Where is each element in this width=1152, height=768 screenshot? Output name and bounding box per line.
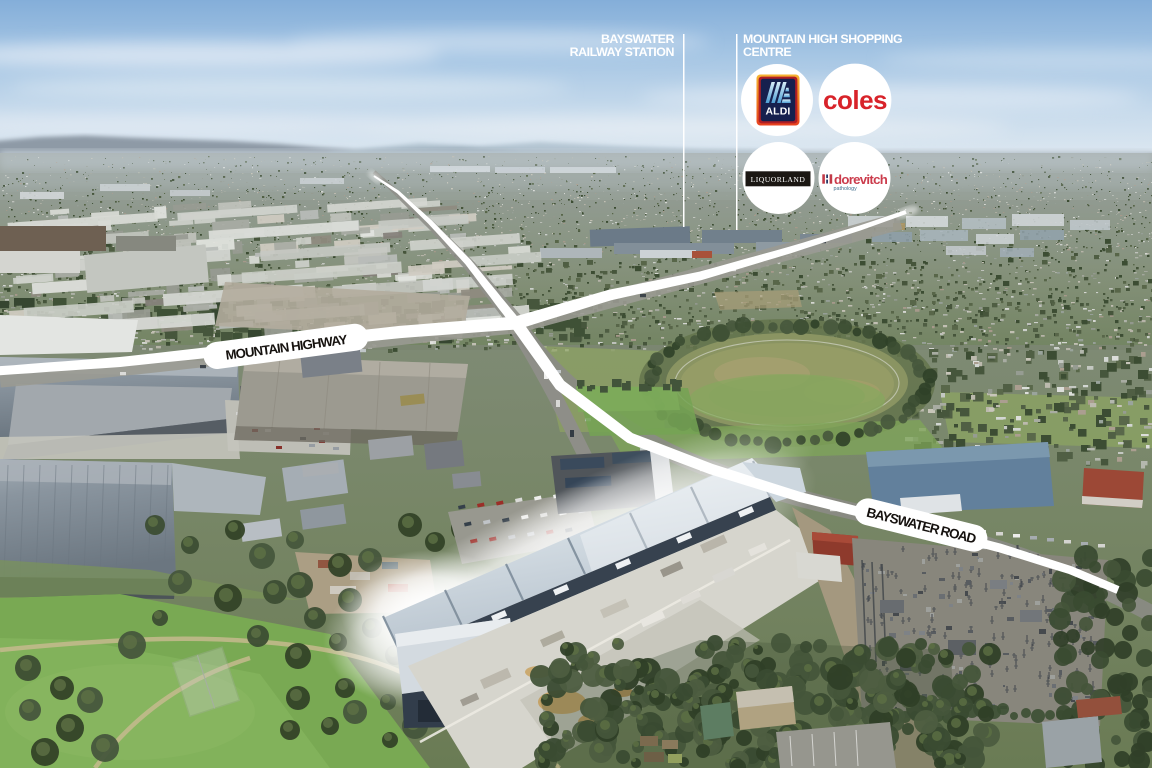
svg-text:RAILWAY STATION: RAILWAY STATION <box>570 45 675 59</box>
svg-text:BAYSWATER: BAYSWATER <box>601 32 675 46</box>
svg-text:coles: coles <box>823 85 887 115</box>
svg-text:CENTRE: CENTRE <box>743 45 791 59</box>
svg-text:ALDI: ALDI <box>765 107 790 118</box>
svg-text:pathology: pathology <box>834 186 858 192</box>
svg-text:MOUNTAIN HIGH SHOPPING: MOUNTAIN HIGH SHOPPING <box>743 32 902 46</box>
svg-text:LIQUORLAND: LIQUORLAND <box>751 175 806 184</box>
svg-text:dorevitch: dorevitch <box>834 172 888 187</box>
